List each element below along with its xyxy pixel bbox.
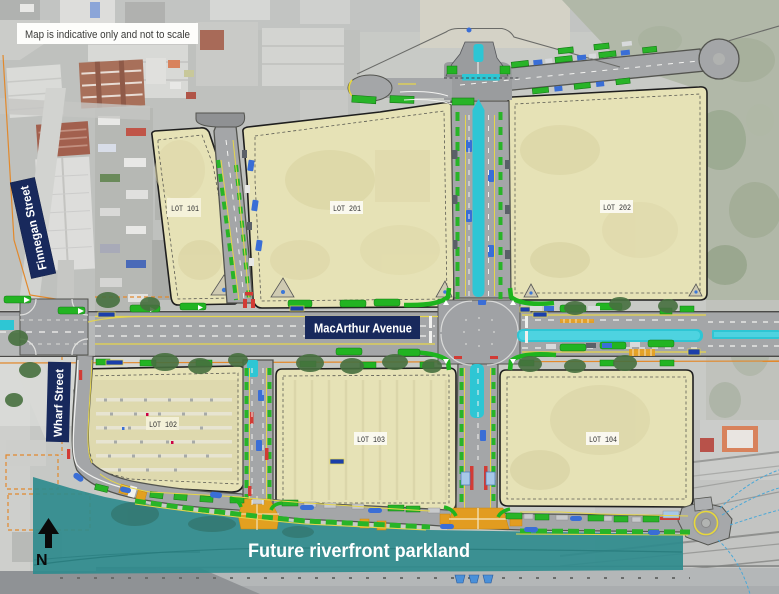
svg-text:LOT 103: LOT 103 xyxy=(357,436,385,445)
svg-text:N: N xyxy=(36,552,48,569)
svg-text:LOT 102: LOT 102 xyxy=(149,421,177,430)
svg-text:MacArthur Avenue: MacArthur Avenue xyxy=(314,321,412,336)
svg-text:LOT 201: LOT 201 xyxy=(333,205,361,214)
svg-text:Future riverfront parkland: Future riverfront parkland xyxy=(248,541,470,562)
svg-text:Wharf Street: Wharf Street xyxy=(53,369,67,437)
svg-text:LOT 104: LOT 104 xyxy=(589,436,617,445)
svg-text:LOT 202: LOT 202 xyxy=(603,204,631,213)
svg-text:LOT 101: LOT 101 xyxy=(171,205,199,214)
svg-text:Map is indicative only and not: Map is indicative only and not to scale xyxy=(25,29,190,41)
